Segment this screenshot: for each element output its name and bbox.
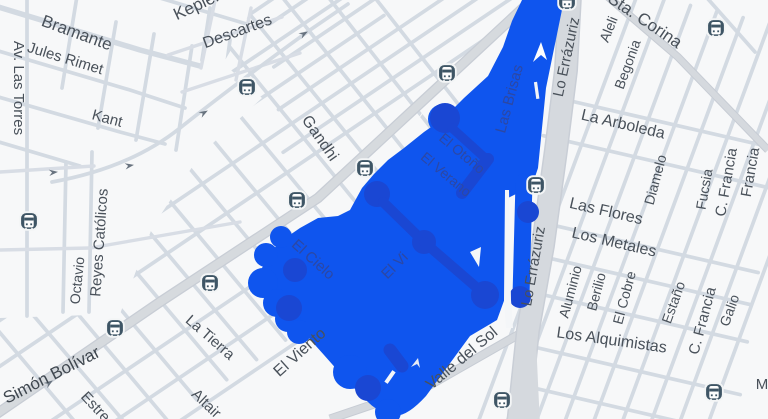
svg-text:M: M [756, 376, 768, 393]
